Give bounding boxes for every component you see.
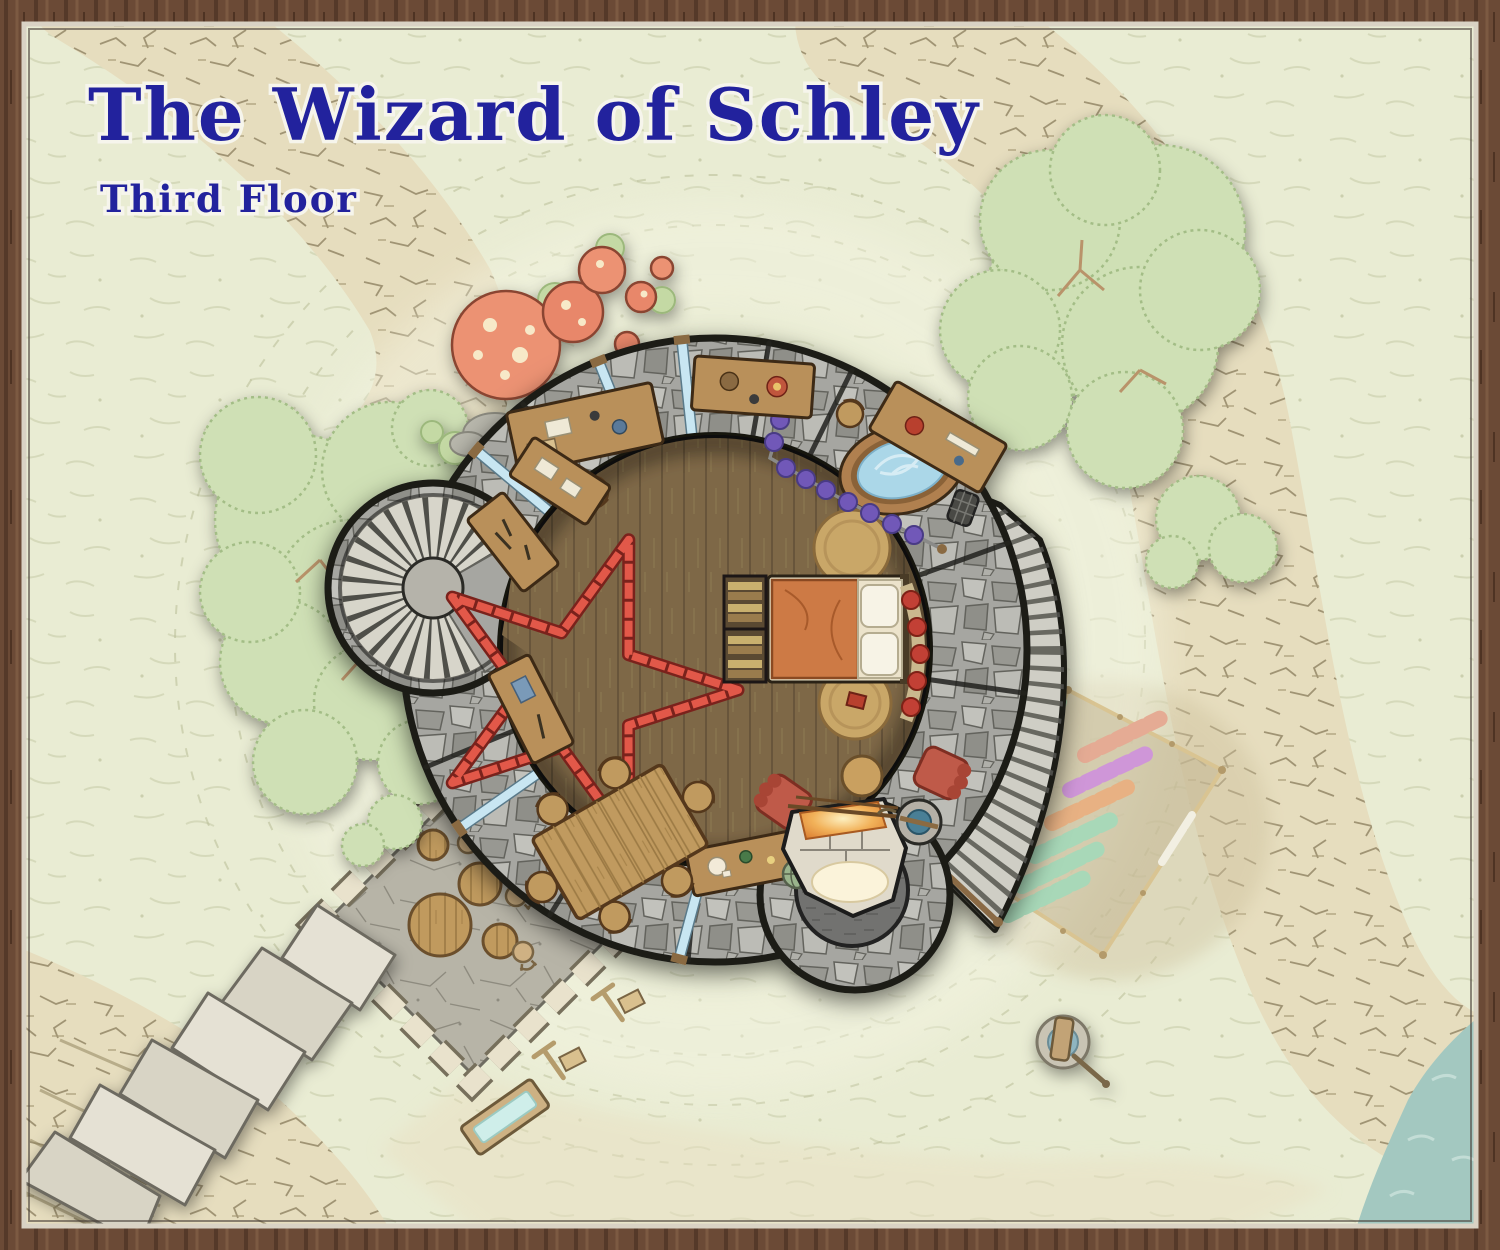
page-title: The Wizard of Schley	[88, 72, 980, 157]
side-table	[842, 756, 882, 796]
bed-blanket	[772, 580, 858, 678]
pillow	[861, 633, 898, 675]
table-north	[691, 356, 814, 418]
fantasy-map-page: The Wizard of Schley Third Floor	[0, 0, 1500, 1250]
bedchamber-bed	[724, 574, 909, 684]
page-subtitle: Third Floor	[100, 177, 358, 221]
map-canvas: The Wizard of Schley Third Floor	[0, 0, 1500, 1250]
red-book	[847, 692, 867, 709]
footboard-bookshelf	[724, 576, 766, 682]
hearth-glow	[812, 862, 888, 902]
pillow	[861, 585, 898, 627]
